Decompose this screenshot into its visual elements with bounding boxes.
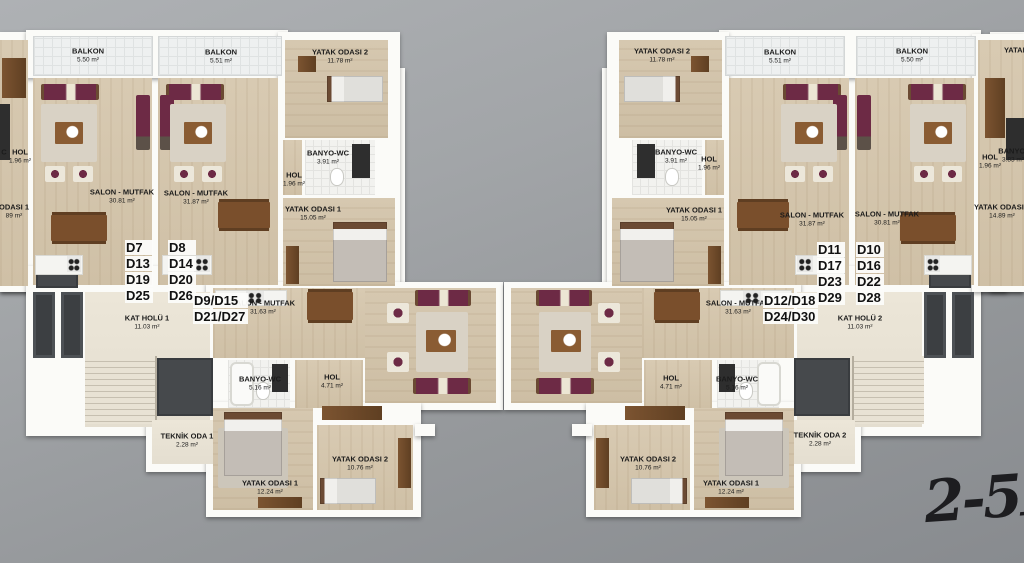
- room-label: YATAK ODASI 112.24 m²: [703, 479, 759, 496]
- room-label: KAT HOLÜ 211.03 m²: [838, 314, 882, 331]
- room-label: YATAK ODASI 115.05 m²: [666, 206, 722, 223]
- single-bed: [327, 76, 383, 102]
- elevator-shaft: [33, 292, 55, 358]
- room-label: SALON - MUTFAK31.63 m²: [706, 299, 770, 316]
- floor-range-note: 2-5FC: [922, 456, 1024, 536]
- elevator-shaft: [924, 292, 946, 358]
- elevator-shaft: [952, 292, 974, 358]
- floor-range-text: 2-5F: [922, 459, 1024, 536]
- unit-number-stack: D8D14D20D26: [168, 240, 196, 304]
- single-bed: [320, 478, 376, 504]
- armchair: [598, 352, 620, 372]
- room-label: YATAK ODASI 211.78 m²: [634, 47, 690, 64]
- room-label: HOL4.71 m²: [660, 374, 682, 391]
- armchair: [942, 166, 962, 182]
- sofa: [536, 290, 592, 306]
- room-label: YATAK ODASI 210.76 m²: [620, 455, 676, 472]
- bathtub: [757, 362, 781, 406]
- room-label: ODASI 189 m²: [0, 203, 29, 220]
- cabinet: [985, 78, 1005, 138]
- room-label: C: [1, 148, 6, 157]
- room-label: BALKON5.50 m²: [896, 47, 928, 64]
- room-label: SALON - MUTFAK30.81 m²: [90, 188, 154, 205]
- coffee-table: [184, 122, 212, 144]
- chaise-lounge: [136, 95, 150, 150]
- coffee-table: [426, 330, 456, 352]
- sofa: [413, 378, 471, 394]
- room-label: SALON - MUTFAK31.87 m²: [780, 211, 844, 228]
- armchair: [813, 166, 833, 182]
- room-label: YATAK ODASI 114.89 m²: [974, 203, 1024, 220]
- closet: [322, 406, 382, 420]
- unit-number-stack: D7D13D19D25: [125, 240, 153, 304]
- room-label: TEKNİK ODA 22.28 m²: [794, 431, 847, 448]
- armchair: [914, 166, 934, 182]
- double-bed: [333, 222, 387, 282]
- room-label: BANYO-3.83 m²: [998, 147, 1024, 164]
- room-label: HOL4.71 m²: [321, 373, 343, 390]
- stove: [797, 256, 813, 272]
- coffee-table: [795, 122, 823, 144]
- sofa: [536, 378, 594, 394]
- armchair: [387, 352, 409, 372]
- room-label: BALKON5.50 m²: [72, 47, 104, 64]
- armchair: [598, 303, 620, 323]
- room-label: HOL1.96 m²: [9, 148, 31, 165]
- dresser: [705, 497, 749, 508]
- wardrobe: [708, 246, 721, 284]
- sofa: [908, 84, 966, 100]
- room-label: BANYO-WC3.91 m²: [307, 149, 349, 166]
- double-bed: [224, 412, 282, 476]
- room-label: HOL1.96 m²: [698, 155, 720, 172]
- toilet: [665, 168, 679, 186]
- unit-number-stack: D9/D15D21/D27: [193, 293, 248, 325]
- elevator-shaft: [61, 292, 83, 358]
- wall-stub: [415, 424, 435, 436]
- room-label: SALON - MUTFAK31.87 m²: [164, 189, 228, 206]
- service-shaft: [794, 358, 850, 416]
- room-label: BANYO-WC3.91 m²: [655, 148, 697, 165]
- room-label: YATAK: [1004, 46, 1024, 55]
- armchair: [45, 166, 65, 182]
- stove: [67, 256, 81, 272]
- room-label: TEKNİK ODA 12.28 m²: [161, 432, 214, 449]
- single-bed: [631, 478, 687, 504]
- room-label: YATAK ODASI 112.24 m²: [242, 479, 298, 496]
- unit-number-stack: D12/D18D24/D30: [763, 293, 818, 325]
- sofa: [415, 290, 471, 306]
- desk: [596, 438, 609, 488]
- toilet: [330, 168, 344, 186]
- coffee-table: [924, 122, 952, 144]
- armchair: [174, 166, 194, 182]
- stove: [926, 256, 940, 272]
- room-label: BANYO-WC5.16 m²: [716, 375, 758, 392]
- room-label: BANYO-WC5.16 m²: [239, 375, 281, 392]
- single-bed: [624, 76, 680, 102]
- desk: [398, 438, 411, 488]
- wall-stub: [572, 424, 592, 436]
- armchair: [202, 166, 222, 182]
- dining-table: [218, 202, 270, 228]
- double-bed: [725, 412, 783, 476]
- dining-table: [51, 215, 107, 241]
- wardrobe: [691, 56, 709, 72]
- staircase-1: [85, 356, 157, 424]
- wardrobe: [286, 246, 299, 284]
- coffee-table: [55, 122, 83, 144]
- room-label: YATAK ODASI 210.76 m²: [332, 455, 388, 472]
- stove: [194, 256, 210, 272]
- unit-number-stack: D11D17D23D29: [817, 242, 845, 306]
- room-label: SALON - MUTFAK30.81 m²: [855, 210, 919, 227]
- room-label: YATAK ODASI 115.05 m²: [285, 205, 341, 222]
- double-bed: [620, 222, 674, 282]
- service-shaft: [157, 358, 213, 416]
- room-label: YATAK ODASI 211.78 m²: [312, 48, 368, 65]
- staircase-2: [852, 356, 924, 424]
- dining-table: [307, 292, 353, 320]
- bathroom-vanity: [352, 144, 370, 178]
- room-label: KAT HOLÜ 111.03 m²: [125, 314, 169, 331]
- room-label: BALKON5.51 m²: [205, 48, 237, 65]
- cabinet: [2, 58, 26, 98]
- sofa: [41, 84, 99, 100]
- armchair: [387, 303, 409, 323]
- room-label: HOL1.96 m²: [283, 171, 305, 188]
- closet: [625, 406, 685, 420]
- coffee-table: [551, 330, 581, 352]
- armchair: [73, 166, 93, 182]
- sofa: [166, 84, 224, 100]
- unit-number-stack: D10D16D22D28: [856, 242, 884, 306]
- floor-plan: BALKON5.50 m²BALKON5.51 m²YATAK ODASI 21…: [0, 0, 1024, 563]
- chaise-lounge: [857, 95, 871, 150]
- bathroom-vanity: [637, 144, 655, 178]
- dining-table: [654, 292, 700, 320]
- dresser: [258, 497, 302, 508]
- room-label: BALKON5.51 m²: [764, 48, 796, 65]
- armchair: [785, 166, 805, 182]
